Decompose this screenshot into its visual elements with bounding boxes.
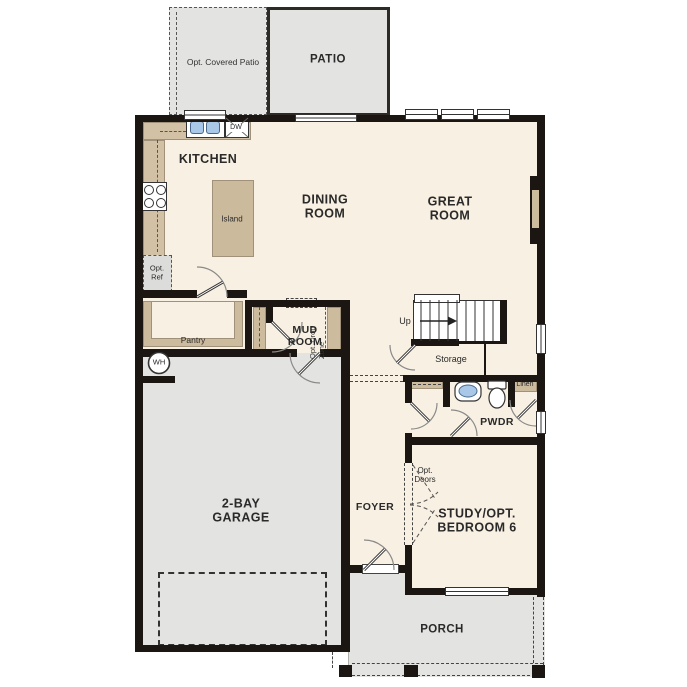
island-label: Island	[221, 214, 242, 223]
floor-plan: PATIO Opt. Covered Patio KITCHEN DINING …	[0, 0, 687, 687]
study-label: STUDY/OPT. BEDROOM 6	[437, 507, 516, 536]
opt-drop-zone-label: Opt. Drop Zone	[308, 303, 326, 359]
linen-label: Linen	[516, 381, 533, 389]
opt-doors-label: Opt. Doors	[414, 466, 435, 484]
garage-label: 2-BAY GARAGE	[212, 497, 269, 526]
dishwasher-label: DW	[229, 124, 243, 132]
patio-label: PATIO	[310, 53, 346, 66]
toilet-icon	[488, 381, 506, 408]
storage-label: Storage	[435, 354, 467, 364]
opt-ref-label: Opt. Ref	[150, 264, 164, 281]
dining-room-label: DINING ROOM	[302, 193, 348, 222]
pantry-label: Pantry	[181, 336, 206, 346]
water-heater-label: WH	[153, 359, 166, 368]
pwdr-label: PWDR	[480, 416, 514, 428]
great-room-label: GREAT ROOM	[428, 195, 473, 224]
porch-label: PORCH	[420, 623, 464, 636]
kitchen-label: KITCHEN	[179, 152, 237, 166]
symbols-layer	[0, 0, 687, 687]
foyer-label: FOYER	[356, 501, 394, 513]
powder-sink-icon	[455, 382, 481, 401]
opt-covered-patio-label: Opt. Covered Patio	[178, 58, 268, 68]
up-label: Up	[399, 316, 411, 326]
cooktop-burners-icon	[145, 186, 166, 208]
